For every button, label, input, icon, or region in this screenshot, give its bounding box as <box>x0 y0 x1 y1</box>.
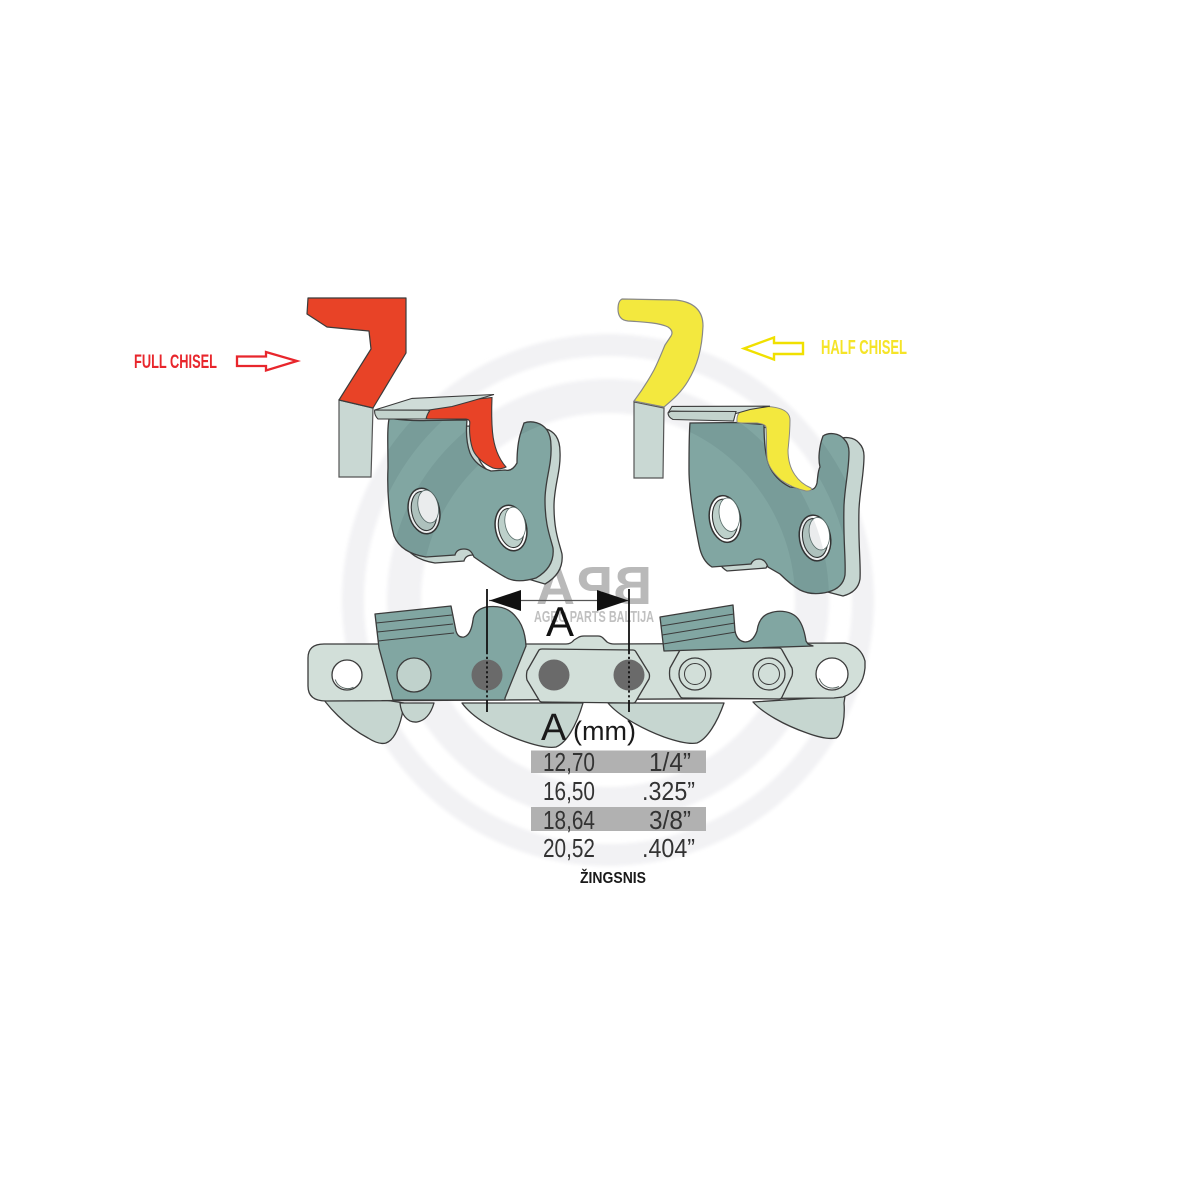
svg-text:HALF CHISEL: HALF CHISEL <box>821 337 907 359</box>
svg-text:ŽINGSNIS: ŽINGSNIS <box>580 868 646 887</box>
svg-text:12,70: 12,70 <box>543 747 595 777</box>
svg-text:FULL CHISEL: FULL CHISEL <box>134 351 217 373</box>
svg-text:(mm): (mm) <box>573 716 636 746</box>
svg-text:18,64: 18,64 <box>543 805 595 835</box>
svg-text:A: A <box>541 707 567 749</box>
svg-text:.404”: .404” <box>642 833 695 863</box>
svg-text:1/4”: 1/4” <box>649 747 691 777</box>
svg-text:A: A <box>546 598 574 645</box>
svg-text:3/8”: 3/8” <box>649 805 691 835</box>
svg-text:.325”: .325” <box>642 776 695 806</box>
svg-text:B: B <box>613 556 652 616</box>
svg-text:16,50: 16,50 <box>543 776 595 806</box>
svg-text:20,52: 20,52 <box>543 833 595 863</box>
